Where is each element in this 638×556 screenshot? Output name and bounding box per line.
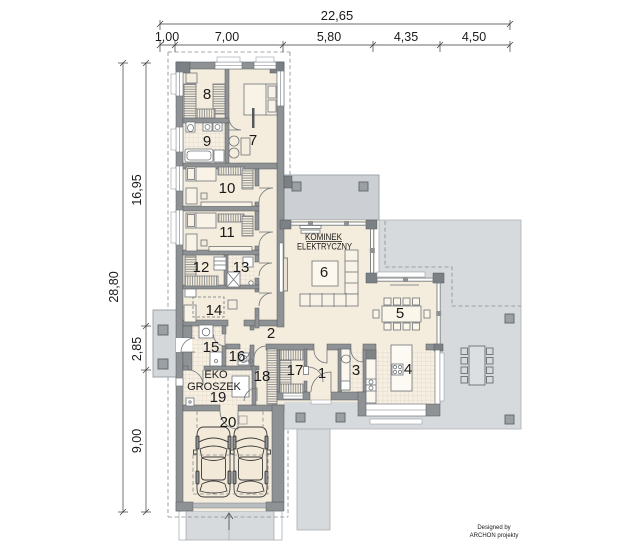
svg-text:ELEKTRYCZNY: ELEKTRYCZNY bbox=[297, 242, 353, 253]
svg-text:3: 3 bbox=[352, 362, 360, 379]
svg-text:ARCHON projekty: ARCHON projekty bbox=[470, 533, 519, 539]
svg-text:GROSZEK: GROSZEK bbox=[187, 381, 241, 393]
svg-text:28,80: 28,80 bbox=[107, 271, 121, 302]
svg-text:5: 5 bbox=[396, 305, 404, 322]
svg-text:7,00: 7,00 bbox=[215, 30, 239, 44]
svg-text:4,35: 4,35 bbox=[394, 30, 418, 44]
svg-text:12: 12 bbox=[193, 259, 210, 276]
svg-text:1,00: 1,00 bbox=[155, 30, 179, 44]
svg-text:11: 11 bbox=[219, 224, 235, 241]
svg-text:14: 14 bbox=[206, 302, 223, 319]
svg-text:10: 10 bbox=[219, 180, 236, 197]
svg-text:4,50: 4,50 bbox=[462, 30, 486, 44]
svg-text:7: 7 bbox=[249, 132, 257, 149]
svg-text:1: 1 bbox=[318, 365, 326, 382]
svg-text:6: 6 bbox=[320, 264, 328, 281]
svg-text:2: 2 bbox=[267, 325, 275, 342]
svg-text:13: 13 bbox=[233, 259, 250, 276]
svg-text:16,95: 16,95 bbox=[130, 174, 144, 205]
svg-text:16: 16 bbox=[229, 348, 246, 365]
svg-text:4: 4 bbox=[404, 361, 412, 378]
svg-text:17: 17 bbox=[287, 362, 304, 379]
svg-text:22,65: 22,65 bbox=[321, 8, 354, 23]
svg-text:15: 15 bbox=[203, 339, 220, 356]
svg-text:8: 8 bbox=[203, 86, 211, 103]
svg-text:18: 18 bbox=[254, 368, 271, 385]
svg-text:20: 20 bbox=[220, 414, 237, 431]
svg-text:2,85: 2,85 bbox=[130, 337, 144, 361]
svg-text:5,80: 5,80 bbox=[317, 30, 341, 44]
svg-text:9: 9 bbox=[203, 133, 211, 150]
svg-text:Designed by: Designed by bbox=[477, 525, 510, 531]
svg-text:9,00: 9,00 bbox=[130, 429, 144, 453]
svg-text:EKO: EKO bbox=[204, 369, 228, 381]
